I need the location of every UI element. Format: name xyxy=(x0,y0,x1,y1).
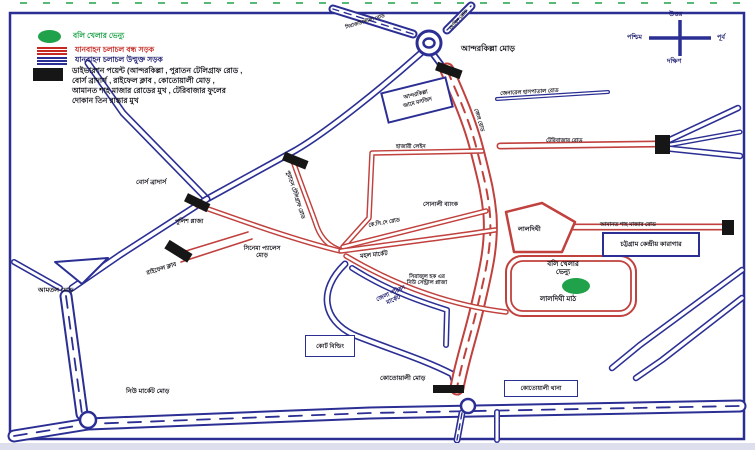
legend-venue-label: বলি খেলার ভেন্যু xyxy=(73,32,124,40)
venue-green-spot xyxy=(562,278,590,294)
diversion-teribazar xyxy=(655,135,670,154)
legend-venue-icon xyxy=(38,30,61,43)
diversion-amanat-shah xyxy=(722,220,734,235)
compass-east-label: পূর্ব xyxy=(717,34,725,41)
label-amtal-mor: আমতল মোড় xyxy=(38,287,74,294)
label-andarkilla-mor: আন্দরকিল্লা মোড় xyxy=(461,45,515,54)
label-hazari-lane: হাজারী লেইন xyxy=(396,144,426,150)
diversion-kotwali xyxy=(433,385,464,393)
legend-diversion-line1: ডাইভারশন পয়েন্ট (আন্দরকিল্লা , পুরাতন ট… xyxy=(72,66,242,76)
label-police-plaza: পুলিশ প্লাজা xyxy=(175,219,203,226)
legend-diversion-line4: দোকান তিন রাস্তার মুখ xyxy=(72,96,242,106)
legend-diversion-icon xyxy=(33,68,63,81)
kotwali-thana-building: কোতোয়ালী থানা xyxy=(504,380,578,397)
legend-diversion-line3: আমানত শাহ মাজার রোডের মুখ , টেরিবাজার ফু… xyxy=(72,86,242,96)
legend-diversion-line2: বোর্স ব্রাদার্স , রাইফেল ক্লাব , কোতোয়া… xyxy=(72,76,242,86)
label-amanat-shah-road: আমানত শাহ মাজার রোড xyxy=(600,222,656,228)
legend-diversion-label: ডাইভারশন পয়েন্ট (আন্দরকিল্লা , পুরাতন ট… xyxy=(72,66,242,106)
compass-icon xyxy=(649,20,711,56)
compass-north-label: উত্তর xyxy=(669,11,682,18)
traffic-map: বলি খেলার ভেন্যু যানবাহন চলাচল বন্ধ সড়ক… xyxy=(0,0,755,450)
label-sonali-bank: সোনালী ব্যাংক xyxy=(423,202,458,209)
legend-open-road-icon xyxy=(37,57,67,65)
legend-closed-road-icon xyxy=(37,47,67,55)
label-cinema-palace: সিনেমা প্যালেস মোড় xyxy=(233,246,291,259)
legend-closed-label: যানবাহন চলাচল বন্ধ সড়ক xyxy=(75,46,154,54)
diversion-rifle-club xyxy=(164,240,192,263)
compass-south-label: দক্ষিণ xyxy=(667,58,681,65)
bottom-clipped-strip xyxy=(0,443,755,450)
label-new-market-mor: নিউ মার্কেট মোড় xyxy=(126,388,169,395)
court-building: কোর্ট বিল্ডিং xyxy=(305,335,355,357)
label-kotwali-mor: কোতোয়ালী মোড় xyxy=(380,375,425,382)
label-teribazar-road: টেরিবাজার রোড xyxy=(546,138,582,144)
label-bors-brothers: বোর্স ব্রাদার্স xyxy=(136,179,166,186)
new-market-roundabout xyxy=(80,412,96,428)
label-laldighi: লালদিঘী xyxy=(518,226,541,233)
label-venue: বলি খেলার ভেন্যু xyxy=(528,261,598,277)
legend-open-label: যানবাহন চলাচল উন্মুক্ত সড়ক xyxy=(75,56,163,64)
kotwali-roundabout xyxy=(461,399,475,413)
compass-west-label: পশ্চিম xyxy=(627,34,642,41)
central-jail-building: চট্টগ্রাম কেন্দ্রীয় কারাগার xyxy=(602,232,700,257)
label-laldighi-math: লালদিঘী মাঠ xyxy=(540,296,576,304)
